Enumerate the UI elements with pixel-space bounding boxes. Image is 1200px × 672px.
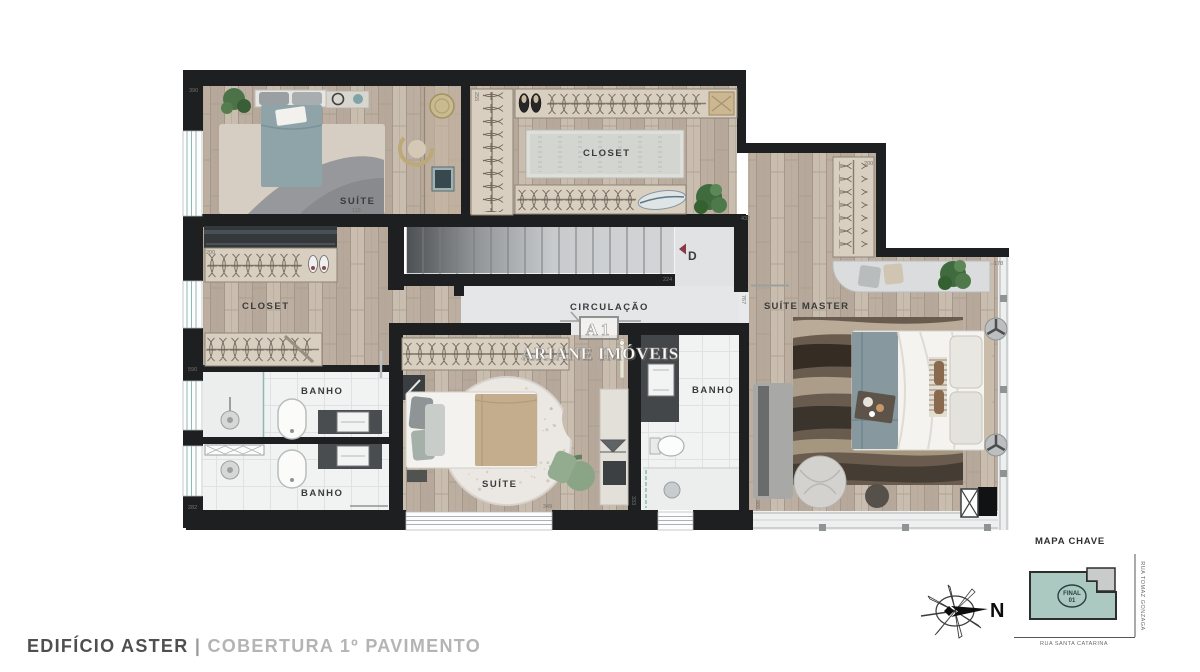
svg-text:N: N (990, 600, 1004, 622)
svg-text:RUA SANTA CATARINA: RUA SANTA CATARINA (1040, 641, 1108, 647)
svg-text:MAPA CHAVE: MAPA CHAVE (1035, 536, 1105, 547)
svg-text:RUA TOMAZ GONZAGA: RUA TOMAZ GONZAGA (1139, 561, 1145, 630)
svg-text:FINAL: FINAL (1063, 591, 1081, 597)
svg-text:01: 01 (1069, 598, 1076, 604)
